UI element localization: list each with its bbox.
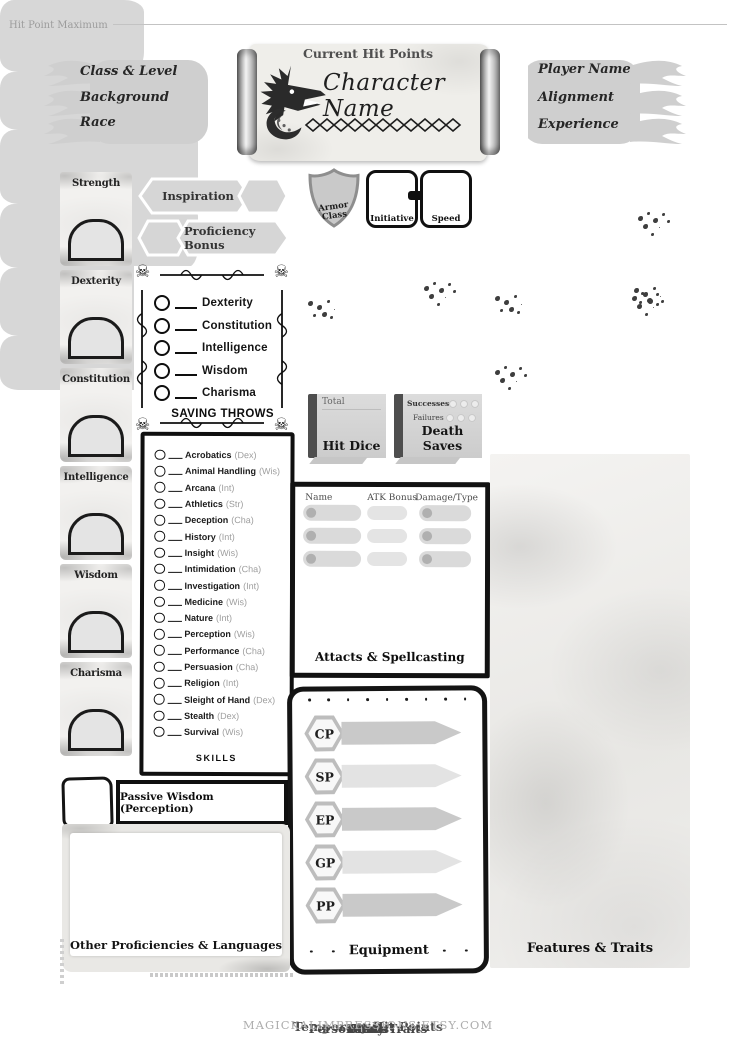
skill-modifier-line[interactable]: [168, 555, 182, 557]
skill-proficiency-circle[interactable]: [154, 645, 165, 656]
equipment-panel: CP SP EP GP PP Equipment: [287, 685, 489, 974]
passive-wisdom-value-box[interactable]: [61, 776, 113, 828]
equipment-title: Equipment: [341, 943, 437, 959]
ability-box-constitution[interactable]: Constitution: [60, 368, 132, 462]
saving-throw-row: Intelligence: [154, 337, 278, 360]
ability-name: Charisma: [60, 668, 132, 679]
right-flame-banner[interactable]: Player Name Alignment Experience: [528, 56, 692, 148]
attack-damage-field[interactable]: [419, 528, 471, 544]
character-name-label: Character Name: [323, 70, 500, 122]
attack-damage-field[interactable]: [419, 505, 471, 521]
save-name: Dexterity: [202, 297, 253, 309]
skill-proficiency-circle[interactable]: [154, 662, 165, 673]
skill-modifier-line[interactable]: [168, 522, 182, 524]
hit-dice-box[interactable]: Total Hit Dice: [308, 394, 386, 458]
skill-row: Medicine(Wis): [154, 593, 288, 610]
ink-spatter: [495, 370, 500, 375]
hit-dice-total-line[interactable]: [322, 409, 381, 410]
skill-name: Insight: [185, 548, 215, 558]
save-name: Constitution: [202, 320, 272, 332]
skill-row: Insight(Wis): [154, 545, 288, 562]
skill-proficiency-circle[interactable]: [154, 499, 165, 510]
coin-label: GP: [309, 848, 341, 876]
watermark-text: MAGICKALIMPRESSIONS.ETSY.COM: [0, 1018, 736, 1032]
skill-name: Perception: [184, 629, 231, 639]
death-save-success-circle[interactable]: [460, 400, 468, 408]
coin-amount-field[interactable]: [342, 805, 462, 832]
saving-throw-row: Constitution: [154, 315, 278, 338]
hit-point-maximum-label: Hit Point Maximum: [9, 20, 108, 31]
skill-name: Investigation: [185, 580, 241, 590]
skill-name: Persuasion: [184, 662, 233, 672]
skill-name: Arcana: [185, 483, 216, 493]
skill-ability: (Str): [226, 499, 244, 509]
skill-ability: (Int): [219, 532, 235, 542]
saving-throw-list: Dexterity Constitution Intelligence Wisd…: [154, 292, 278, 405]
skill-ability: (Int): [218, 483, 234, 493]
skill-row: Deception(Cha): [154, 512, 288, 529]
skill-proficiency-circle[interactable]: [154, 482, 165, 493]
skill-proficiency-circle[interactable]: [154, 727, 165, 738]
skill-proficiency-circle[interactable]: [154, 580, 165, 591]
left-flame-banner[interactable]: Class & Level Background Race: [38, 56, 208, 148]
skill-proficiency-circle[interactable]: [154, 678, 165, 689]
attacks-title: Attacts & Spellcasting: [295, 650, 485, 664]
character-name-scroll[interactable]: Character Name: [237, 44, 500, 161]
save-proficiency-circle[interactable]: [154, 295, 170, 311]
coin-hex: SP: [304, 758, 344, 794]
skill-modifier-line[interactable]: [168, 490, 182, 492]
skill-modifier-line[interactable]: [167, 685, 181, 687]
skill-proficiency-circle[interactable]: [154, 710, 165, 721]
skill-proficiency-circle[interactable]: [154, 466, 165, 477]
skill-ability: (Dex): [253, 695, 275, 705]
skill-name: History: [185, 532, 216, 542]
character-sheet-page: Class & Level Background Race Character …: [0, 0, 736, 1041]
ink-spatter: [638, 216, 643, 221]
save-proficiency-circle[interactable]: [154, 385, 170, 401]
skill-ability: (Wis): [226, 597, 247, 607]
saving-throw-row: Dexterity: [154, 292, 278, 315]
save-modifier-line[interactable]: [175, 306, 197, 309]
ink-spatter: [632, 296, 637, 301]
skill-modifier-line[interactable]: [168, 571, 182, 573]
skill-modifier-line[interactable]: [167, 701, 181, 703]
coin-amount-field[interactable]: [341, 719, 461, 746]
skill-name: Religion: [184, 678, 220, 688]
skill-ability: (Cha): [236, 662, 259, 672]
coin-hex: EP: [305, 801, 345, 837]
skill-name: Intimidation: [185, 564, 236, 574]
death-save-failures-row: Failures: [413, 413, 476, 422]
skill-modifier-line[interactable]: [167, 653, 181, 655]
coin-row-cp: CP: [304, 714, 461, 751]
skill-proficiency-circle[interactable]: [154, 531, 165, 542]
skill-modifier-line[interactable]: [167, 604, 181, 606]
skill-name: Stealth: [184, 711, 214, 721]
ability-name: Constitution: [60, 374, 132, 385]
save-modifier-line[interactable]: [175, 328, 197, 331]
ability-name: Dexterity: [60, 276, 132, 287]
ability-modifier-field[interactable]: [68, 513, 124, 555]
initiative-label: Initiative: [369, 214, 415, 224]
skill-ability: (Int): [223, 678, 239, 688]
skill-ability: (Dex): [235, 450, 257, 460]
skill-name: Acrobatics: [185, 450, 232, 460]
ability-name: Strength: [60, 178, 132, 189]
attack-name-field[interactable]: [303, 528, 361, 544]
skill-proficiency-circle[interactable]: [154, 515, 165, 526]
skill-proficiency-circle[interactable]: [155, 450, 166, 461]
other-proficiencies-label: Other Proficiencies & Languages: [62, 938, 290, 952]
skill-proficiency-circle[interactable]: [154, 547, 165, 558]
proficiency-bonus-banner[interactable]: Proficiency Bonus: [136, 218, 290, 258]
skill-ability: (Cha): [242, 646, 265, 656]
skill-proficiency-circle[interactable]: [154, 613, 165, 624]
ability-modifier-field[interactable]: [68, 415, 124, 457]
save-name: Charisma: [202, 387, 256, 399]
skull-icon: ☠: [274, 264, 289, 281]
death-save-success-circle[interactable]: [471, 400, 479, 408]
inspiration-banner[interactable]: Inspiration: [136, 176, 290, 216]
ability-box-strength[interactable]: Strength: [60, 172, 132, 266]
attack-name-field[interactable]: [303, 551, 361, 567]
skill-modifier-line[interactable]: [168, 506, 182, 508]
attack-name-field[interactable]: [303, 505, 361, 521]
skill-row: Religion(Int): [154, 675, 288, 692]
hit-point-maximum-line[interactable]: [113, 24, 727, 25]
attacks-panel: Name ATK Bonus Damage/Type Attacts & Spe…: [290, 482, 491, 679]
successes-label: Successes: [407, 399, 449, 408]
skill-row: Animal Handling(Wis): [154, 463, 288, 480]
attack-bonus-field[interactable]: [367, 529, 407, 543]
save-proficiency-circle[interactable]: [154, 318, 170, 334]
hit-dice-label: Hit Dice: [317, 438, 386, 453]
other-proficiencies-box: Other Proficiencies & Languages: [62, 824, 290, 972]
background-label: Background: [80, 90, 169, 105]
coin-hex: PP: [305, 887, 345, 923]
attack-damage-field[interactable]: [419, 551, 471, 567]
skill-row: Investigation(Int): [154, 577, 288, 594]
experience-label: Experience: [538, 117, 619, 132]
skill-proficiency-circle[interactable]: [154, 564, 165, 575]
coin-label: EP: [309, 805, 341, 833]
skill-name: Medicine: [184, 597, 223, 607]
coin-hex: CP: [304, 715, 344, 751]
skill-list: Acrobatics(Dex) Animal Handling(Wis) Arc…: [154, 447, 289, 741]
attack-bonus-header: ATK Bonus: [367, 493, 417, 503]
coin-row-pp: PP: [305, 886, 462, 923]
features-traits-label: Features & Traits: [490, 941, 690, 956]
coin-amount-field[interactable]: [342, 762, 462, 789]
ability-name: Intelligence: [60, 472, 132, 483]
skill-ability: (Wis): [259, 467, 280, 477]
skill-modifier-line[interactable]: [167, 636, 181, 638]
fineprint-smudge: [60, 936, 64, 984]
skill-proficiency-circle[interactable]: [154, 629, 165, 640]
speed-label: Speed: [423, 214, 469, 224]
diamond-chain-ornament-icon: [299, 118, 467, 132]
skill-row: History(Int): [154, 528, 288, 545]
ink-spatter: [424, 286, 429, 291]
skill-row: Intimidation(Cha): [154, 561, 288, 578]
alignment-label: Alignment: [538, 90, 614, 105]
skill-row: Arcana(Int): [154, 479, 288, 496]
skill-row: Performance(Cha): [154, 642, 288, 659]
coin-hex: GP: [305, 844, 345, 880]
passive-wisdom-plate: Passive Wisdom (Perception): [116, 780, 288, 825]
skill-name: Survival: [184, 727, 219, 737]
skill-row: Perception(Wis): [154, 626, 288, 643]
skull-icon: ☠: [135, 264, 150, 281]
death-save-failure-circle[interactable]: [457, 414, 465, 422]
skill-modifier-line[interactable]: [167, 718, 181, 720]
skill-row: Survival(Wis): [154, 724, 288, 741]
coin-label: SP: [309, 762, 341, 790]
current-hit-points-label: Current Hit Points: [0, 46, 736, 61]
speed-box[interactable]: Speed: [420, 170, 472, 228]
coin-amount-field[interactable]: [342, 891, 462, 918]
attack-bonus-field[interactable]: [367, 552, 407, 566]
save-name: Intelligence: [202, 342, 268, 354]
ability-modifier-field[interactable]: [68, 709, 124, 751]
skill-row: Persuasion(Cha): [154, 659, 288, 676]
skill-name: Animal Handling: [185, 466, 256, 476]
saving-throws-title: SAVING THROWS: [171, 408, 274, 420]
features-traits-box[interactable]: Features & Traits: [490, 454, 690, 968]
skill-modifier-line[interactable]: [168, 538, 182, 540]
skill-row: Acrobatics(Dex): [154, 447, 288, 464]
death-save-success-circle[interactable]: [449, 400, 457, 408]
skill-name: Performance: [184, 646, 239, 656]
skill-row: Athletics(Str): [154, 496, 288, 513]
skill-proficiency-circle[interactable]: [154, 596, 165, 607]
skills-title: SKILLS: [143, 753, 289, 764]
flourish-border-icon: [136, 290, 148, 408]
skill-row: Sleight of Hand(Dex): [154, 691, 288, 708]
skill-row: Stealth(Dex): [154, 708, 288, 725]
skill-row: Nature(Int): [154, 610, 288, 627]
attack-name-header: Name: [305, 493, 332, 503]
ability-modifier-field[interactable]: [68, 317, 124, 359]
inspiration-label: Inspiration: [146, 176, 250, 216]
ability-box-intelligence[interactable]: Intelligence: [60, 466, 132, 560]
death-save-failure-circle[interactable]: [446, 414, 454, 422]
proficiency-bonus-label: Proficiency Bonus: [184, 218, 288, 258]
death-saves-label: Death Saves: [403, 423, 482, 453]
ink-spatter: [308, 301, 313, 306]
save-proficiency-circle[interactable]: [154, 340, 170, 356]
skill-modifier-line[interactable]: [167, 669, 181, 671]
book-spine: [308, 394, 317, 458]
skill-name: Deception: [185, 515, 229, 525]
skill-ability: (Cha): [239, 564, 262, 574]
skill-ability: (Int): [243, 581, 259, 591]
ink-spatter: [634, 288, 639, 293]
coin-amount-field[interactable]: [342, 848, 462, 875]
save-modifier-line[interactable]: [175, 351, 197, 354]
ability-box-dexterity[interactable]: Dexterity: [60, 270, 132, 364]
failures-label: Failures: [413, 413, 444, 422]
ability-box-charisma[interactable]: Charisma: [60, 662, 132, 756]
saving-throws-panel: ☠ ☠ ☠ ☠ Dexterity: [134, 266, 290, 432]
coin-label: PP: [309, 891, 341, 919]
skill-name: Nature: [184, 613, 213, 623]
attack-bonus-field[interactable]: [367, 506, 407, 520]
skill-modifier-line[interactable]: [168, 457, 182, 459]
flourish-border-icon: [160, 269, 264, 281]
class-level-label: Class & Level: [80, 64, 177, 79]
ability-box-wisdom[interactable]: Wisdom: [60, 564, 132, 658]
death-saves-box: Successes Failures Death Saves: [394, 394, 482, 458]
ink-spatter: [495, 296, 500, 301]
save-proficiency-circle[interactable]: [154, 363, 170, 379]
saving-throw-row: Charisma: [154, 382, 278, 405]
coin-row-gp: GP: [305, 843, 462, 880]
skill-ability: (Cha): [231, 515, 254, 525]
dot-ornament-row: [308, 697, 466, 701]
player-name-label: Player Name: [538, 62, 631, 77]
fineprint-smudge: [150, 973, 295, 977]
skill-proficiency-circle[interactable]: [154, 694, 165, 705]
save-name: Wisdom: [202, 365, 248, 377]
death-save-successes-row: Successes: [407, 399, 476, 408]
skill-ability: (Wis): [234, 629, 255, 639]
ability-modifier-field[interactable]: [68, 219, 124, 261]
passive-wisdom-label: Passive Wisdom (Perception): [120, 791, 284, 815]
skill-ability: (Dex): [217, 711, 239, 721]
skill-modifier-line[interactable]: [167, 620, 181, 622]
skill-ability: (Int): [216, 613, 232, 623]
skill-modifier-line[interactable]: [168, 587, 182, 589]
skill-modifier-line[interactable]: [168, 473, 182, 475]
ability-modifier-field[interactable]: [68, 611, 124, 653]
skill-name: Sleight of Hand: [184, 694, 250, 704]
coin-label: CP: [308, 719, 340, 747]
coin-row-ep: EP: [305, 800, 462, 837]
book-spine: [394, 394, 403, 458]
attack-damage-header: Damage/Type: [415, 493, 478, 503]
death-save-failure-circle[interactable]: [468, 414, 476, 422]
skill-ability: (Wis): [222, 727, 243, 737]
hit-dice-total-label: Total: [322, 397, 345, 407]
skills-panel: Acrobatics(Dex) Animal Handling(Wis) Arc…: [139, 432, 294, 777]
skill-modifier-line[interactable]: [167, 734, 181, 736]
coin-row-sp: SP: [304, 757, 461, 794]
skill-ability: (Wis): [217, 548, 238, 558]
save-modifier-line[interactable]: [175, 373, 197, 376]
ability-name: Wisdom: [60, 570, 132, 581]
save-modifier-line[interactable]: [175, 396, 197, 399]
saving-throw-row: Wisdom: [154, 360, 278, 383]
skill-name: Athletics: [185, 499, 223, 509]
race-label: Race: [80, 115, 116, 130]
